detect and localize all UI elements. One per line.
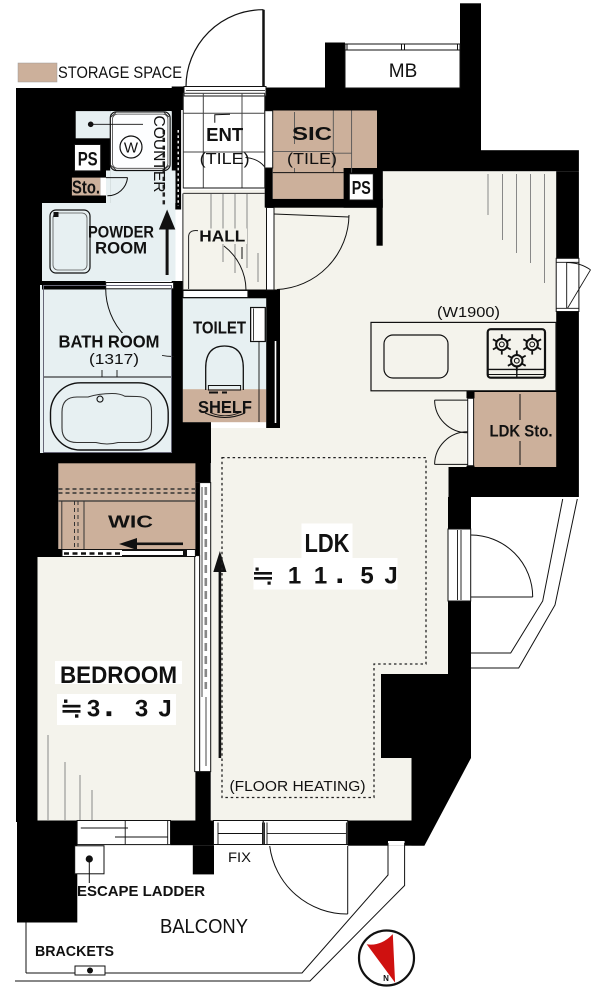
svg-text:MB: MB	[389, 61, 418, 82]
svg-text:ESCAPE LADDER: ESCAPE LADDER	[77, 883, 205, 900]
svg-text:BATH ROOM: BATH ROOM	[59, 332, 160, 352]
svg-text:PS: PS	[78, 150, 98, 171]
svg-text:LDK Sto.: LDK Sto.	[490, 422, 553, 441]
svg-text:Sto.: Sto.	[72, 178, 100, 198]
svg-text:3: 3	[135, 696, 148, 723]
svg-text:PS: PS	[352, 178, 371, 198]
svg-text:BRACKETS: BRACKETS	[35, 944, 114, 960]
svg-text:(FLOOR HEATING): (FLOOR HEATING)	[230, 778, 366, 795]
svg-text:BEDROOM: BEDROOM	[60, 662, 177, 689]
svg-text:1: 1	[314, 563, 327, 590]
svg-text:J: J	[384, 563, 397, 590]
svg-text:TOILET: TOILET	[193, 318, 246, 338]
svg-text:SIC: SIC	[292, 124, 332, 144]
svg-text:COUNTER: COUNTER	[150, 116, 167, 193]
svg-text:N: N	[383, 974, 389, 983]
svg-text:(W1900): (W1900)	[437, 305, 500, 321]
svg-text:1: 1	[288, 563, 301, 590]
svg-text:5: 5	[360, 563, 373, 590]
svg-text:SHELF: SHELF	[198, 397, 252, 417]
svg-text:(1317): (1317)	[89, 351, 139, 368]
svg-text:STORAGE SPACE: STORAGE SPACE	[58, 63, 182, 82]
svg-text:ENT: ENT	[206, 125, 243, 145]
svg-text:FIX: FIX	[228, 849, 252, 865]
svg-text:(TILE): (TILE)	[287, 151, 337, 168]
svg-text:W: W	[124, 140, 139, 157]
svg-text:WIC: WIC	[108, 512, 153, 532]
svg-text:HALL: HALL	[199, 229, 245, 246]
svg-text:LDK: LDK	[305, 528, 350, 558]
svg-text:J: J	[158, 696, 171, 723]
svg-text:(TILE): (TILE)	[200, 151, 250, 168]
svg-text:BALCONY: BALCONY	[160, 916, 248, 938]
svg-text:ROOM: ROOM	[95, 239, 147, 258]
svg-text:3: 3	[87, 696, 100, 723]
